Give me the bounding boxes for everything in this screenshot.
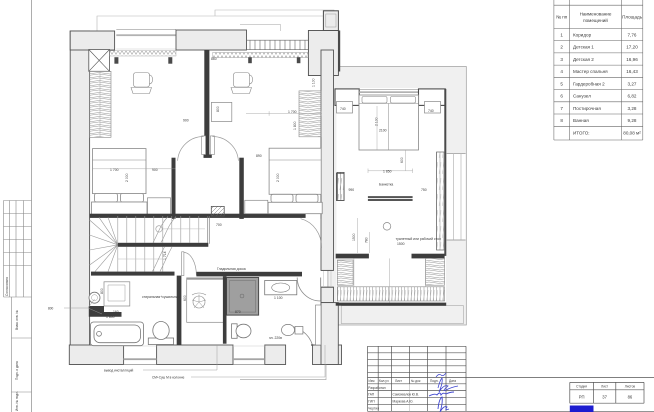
- svg-text:740: 740: [340, 107, 346, 111]
- svg-text:2 100: 2 100: [375, 117, 379, 126]
- svg-text:Гардеробная 2: Гардеробная 2: [573, 81, 605, 86]
- svg-text:Банкетка: Банкетка: [379, 183, 393, 187]
- svg-text:ГАП: ГАП: [368, 393, 375, 397]
- svg-text:860: 860: [211, 57, 217, 61]
- svg-text:Разработал: Разработал: [368, 386, 385, 390]
- svg-text:2 000: 2 000: [125, 173, 129, 182]
- svg-text:2100: 2100: [379, 129, 387, 133]
- svg-text:Подп. и дата: Подп. и дата: [15, 361, 19, 380]
- svg-text:37: 37: [602, 395, 607, 400]
- svg-text:Инв. № подл.: Инв. № подл.: [15, 391, 19, 411]
- svg-text:740: 740: [428, 109, 434, 113]
- svg-text:1500: 1500: [352, 233, 356, 241]
- svg-text:7,76: 7,76: [628, 33, 637, 38]
- svg-text:РП: РП: [579, 395, 585, 400]
- svg-text:86: 86: [628, 395, 633, 400]
- svg-text:СМ+Суш М в колонне: СМ+Суш М в колонне: [152, 376, 185, 380]
- svg-text:Взам. инв. №: Взам. инв. №: [15, 310, 19, 330]
- svg-text:туалетный или рабочий стол: туалетный или рабочий стол: [396, 237, 441, 241]
- svg-text:Ванная: Ванная: [573, 118, 589, 123]
- svg-text:Детская 2: Детская 2: [573, 57, 594, 62]
- svg-text:помещений: помещений: [583, 17, 608, 23]
- svg-text:1 800: 1 800: [293, 121, 297, 130]
- svg-text:Наименование: Наименование: [580, 12, 612, 17]
- svg-text:600: 600: [400, 157, 404, 163]
- svg-text:1 700: 1 700: [110, 168, 119, 172]
- svg-text:1500: 1500: [397, 242, 405, 246]
- svg-text:Дата: Дата: [449, 379, 456, 383]
- svg-text:990: 990: [349, 188, 355, 192]
- svg-text:870: 870: [235, 310, 241, 314]
- svg-text:Изм: Изм: [369, 379, 375, 383]
- svg-text:17,20: 17,20: [626, 45, 638, 50]
- svg-text:750: 750: [421, 188, 427, 192]
- svg-text:Коридор: Коридор: [573, 33, 592, 38]
- svg-text:16,96: 16,96: [626, 57, 638, 62]
- svg-text:Чертил: Чертил: [368, 407, 379, 411]
- svg-text:7: 7: [560, 106, 563, 111]
- svg-text:1 800: 1 800: [106, 315, 115, 319]
- svg-text:1 100: 1 100: [274, 296, 283, 300]
- svg-text:900: 900: [183, 119, 189, 123]
- svg-text:1 850: 1 850: [383, 170, 392, 174]
- svg-text:780: 780: [365, 237, 369, 243]
- svg-text:800: 800: [216, 106, 220, 112]
- svg-text:Самохвалов Ю.В.: Самохвалов Ю.В.: [393, 393, 420, 397]
- svg-text:Подп.: Подп.: [430, 379, 439, 383]
- svg-text:800: 800: [48, 307, 54, 311]
- svg-text:6,82: 6,82: [628, 94, 637, 99]
- svg-text:1 700: 1 700: [288, 110, 297, 114]
- svg-text:4: 4: [560, 69, 563, 74]
- svg-text:Мастер спальня: Мастер спальня: [573, 69, 608, 74]
- svg-text:Детская 1: Детская 1: [573, 45, 594, 50]
- svg-text:80,08 м²: 80,08 м²: [623, 131, 641, 136]
- svg-text:1 714: 1 714: [163, 251, 167, 260]
- svg-text:6: 6: [560, 94, 563, 99]
- svg-text:5: 5: [560, 81, 563, 86]
- svg-text:№ док: № док: [411, 379, 421, 383]
- svg-text:Постирочная: Постирочная: [573, 106, 601, 111]
- svg-text:1: 1: [560, 33, 563, 38]
- svg-text:вывод инсталляций: вывод инсталляций: [104, 369, 133, 373]
- svg-text:Маркова А.Ю.: Маркова А.Ю.: [393, 400, 414, 404]
- svg-text:3,27: 3,27: [628, 81, 637, 86]
- svg-text:Листов: Листов: [625, 384, 636, 388]
- svg-text:эл. 220в: эл. 220в: [269, 336, 282, 340]
- svg-text:ГИП: ГИП: [368, 400, 375, 404]
- svg-text:стиральная+сушильная: стиральная+сушильная: [142, 295, 180, 299]
- svg-text:2: 2: [560, 45, 563, 50]
- svg-text:160: 160: [113, 310, 119, 314]
- svg-text:16,43: 16,43: [626, 69, 638, 74]
- svg-text:ИТОГО:: ИТОГО:: [573, 131, 590, 136]
- svg-text:9,28: 9,28: [628, 118, 637, 123]
- svg-text:8: 8: [560, 118, 563, 123]
- svg-text:3: 3: [560, 57, 563, 62]
- svg-text:600: 600: [183, 295, 187, 301]
- svg-text:700: 700: [216, 223, 222, 227]
- svg-text:Стадия: Стадия: [576, 384, 587, 388]
- svg-text:Лист: Лист: [601, 384, 608, 388]
- svg-text:№ пп: № пп: [556, 15, 568, 20]
- svg-text:3,28: 3,28: [628, 106, 637, 111]
- svg-text:Санузел: Санузел: [573, 94, 591, 99]
- svg-text:Гладильная доска: Гладильная доска: [217, 267, 246, 271]
- svg-text:Площадь: Площадь: [622, 15, 643, 20]
- svg-text:Согласовано: Согласовано: [5, 277, 9, 296]
- svg-text:900: 900: [152, 168, 158, 172]
- svg-text:2 000: 2 000: [276, 173, 280, 182]
- svg-text:890: 890: [256, 154, 262, 158]
- svg-text:1 100: 1 100: [312, 78, 316, 87]
- svg-text:Лист: Лист: [395, 379, 402, 383]
- svg-text:800: 800: [100, 288, 104, 294]
- svg-text:Кол.уч: Кол.уч: [379, 379, 389, 383]
